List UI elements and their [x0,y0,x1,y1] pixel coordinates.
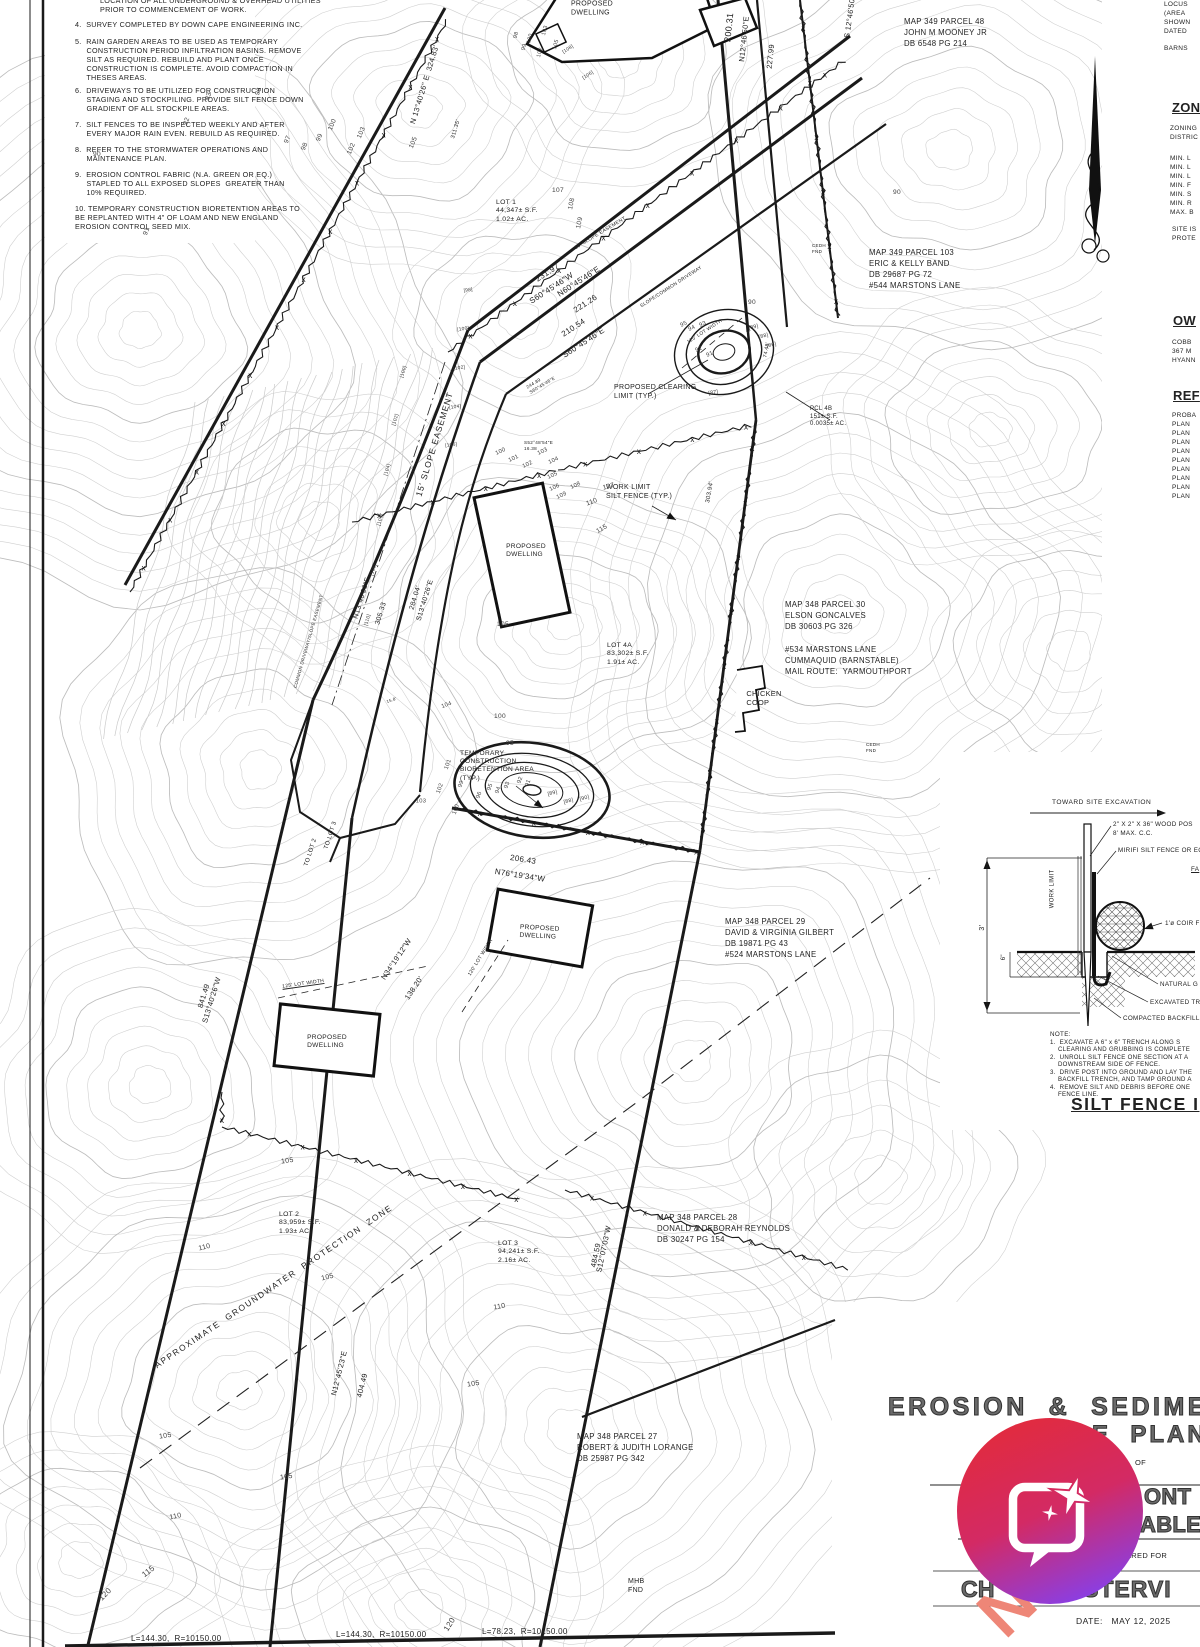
construction-note: 4. SURVEY COMPLETED BY DOWN CAPE ENGINEE… [75,20,302,29]
bearing-label: S 12°46'50" W 176.06' [842,0,863,39]
contour-label: 102 [436,782,446,794]
site-plan-sheet: xxxxxxxxxxxxxxxxxxxxxxxxxxxxxxxxxxxxxxxx… [0,0,1200,1647]
contour-label: 92 [694,345,703,355]
spot-elevation: [87] [708,389,719,397]
bearing-label: 305.33 [374,601,389,626]
feature-label: MHB FND [628,1578,644,1596]
dwelling-label: PROPOSED DWELLING [571,0,613,18]
lot-label: LOT 2 83,959± S.F. 1.93± AC. [279,1211,321,1236]
feature-label: CEDH FND [866,742,880,753]
sidebar-text: PROTE [1172,235,1196,243]
construction-note: 6. DRIVEWAYS TO BE UTILIZED FOR CONSTRUC… [75,86,304,113]
lot-label: LOT 3 94,241± S.F. 2.16± AC. [498,1240,540,1265]
parcel-label: MAP 348 PARCEL 29 DAVID & VIRGINIA GILBE… [725,917,834,961]
spot-elevation: [110] [364,614,373,627]
bearing-label: SLOPE/COMMON DRIVEWAY [640,266,704,310]
sidebar-text: DATED [1164,28,1187,36]
contour-label: 96 [475,791,484,800]
sidebar-text: MIN. F [1170,182,1191,190]
parcel-label: #534 MARSTONS LANE CUMMAQUID (BARNSTABLE… [785,645,912,678]
contour-label: 115 [595,523,609,536]
spot-elevation: [108] [562,44,575,56]
contour-label: 109 [575,216,586,229]
bearing-label: N12°45'23"E [329,1350,349,1397]
detail-label: TOWARD SITE EXCAVATION [1052,799,1151,807]
contour-label: 105 [497,621,509,629]
contour-label: 91 [142,226,152,236]
bearing-label: 404.49 [355,1372,370,1398]
feature-label: CHICKEN COOP [746,689,781,708]
sidebar-text: (AREA [1164,10,1185,18]
contour-label: 93 [503,781,512,790]
contour-label: 99 [521,43,529,51]
bearing-label: N34°19'12"W [379,937,414,982]
detail-label: EXCAVATED TR [1150,999,1200,1007]
feature-label: CEDH FND [812,243,826,254]
bearing-label: 311.35' [450,119,462,140]
detail-label: 1'ø COIR F [1165,920,1200,928]
contour-label: 105 [467,1380,481,1390]
sidebar-text: SHOWN [1164,19,1190,27]
curve-label: L=78.23, R=10150.00 [482,1627,568,1637]
sidebar-text: PLAN [1172,430,1190,438]
spot-elevation: [100] [400,365,409,378]
sidebar-text: BARNS [1164,45,1188,53]
contour-label: 105 [280,1473,294,1483]
lot-label: PCL 4B 151± S.F. 0.0035± AC. [810,406,846,429]
spot-elevation: [106] [582,70,595,82]
bearing-label: 244.89 S60°45'46"E [525,370,556,395]
contour-label: 98 [300,142,311,152]
contour-label: 104 [441,701,453,711]
contour-label: 105 [408,136,420,150]
curve-label: L=144.30, R=10150.00 [336,1630,426,1640]
contour-label: 90 [893,189,901,197]
sidebar-text: ZONING [1170,125,1197,133]
sidebar-text: PLAN [1172,475,1190,483]
sidebar-text: PLAN [1172,448,1190,456]
bearing-label: 120' LOT WIDTH [467,938,495,977]
bearing-label: TO LOT 3 [324,821,340,851]
detail-label: FA [1191,866,1199,874]
sidebar-text: MIN. S [1170,191,1192,199]
bearing-label: 200.31 [722,12,736,42]
detail-dimension: 3' [979,925,988,931]
detail-label: NATURAL G [1160,981,1198,989]
contour-label: 103 [416,798,427,805]
contour-label: 110 [169,1512,183,1523]
feature-label: PROPOSED CLEARING LIMIT (TYP.) [614,384,697,402]
contour-label: 94 [687,324,696,334]
spot-elevation: [89] [547,789,558,798]
construction-note: 9. EROSION CONTROL FABRIC (N.A. GREEN OR… [75,170,285,197]
construction-note: LOCATION OF ALL UNDERGROUND & OVERHEAD U… [100,0,321,14]
parcel-label: MAP 348 PARCEL 27 ROBERT & JUDITH LORANG… [577,1432,694,1465]
contour-label: 102 [346,142,358,156]
contour-label: 110 [493,1303,506,1314]
contour-label: 108 [570,481,583,492]
contour-label: 97 [283,135,294,145]
spot-elevation: [102] [453,365,466,373]
sidebar-text: PLAN [1172,421,1190,429]
sidebar-text: MAX. B [1170,209,1194,217]
contour-label: 90 [93,151,101,159]
spot-elevation: [90] [579,794,590,803]
sidebar-text: COBB [1172,339,1192,347]
sidebar-text: PLAN [1172,493,1190,501]
contour-label: 105 [321,1273,335,1285]
contour-label: 91 [524,779,533,788]
contour-label: 101 [508,454,521,465]
detail-label: COMPACTED BACKFILL [1123,1015,1200,1023]
contour-label: 105 [547,471,560,482]
contour-label: 102 [522,460,535,471]
bearing-label: N 13°40'26" E 324.83' [408,44,441,125]
sidebar-text: PLAN [1172,457,1190,465]
plan-labels: LOCATION OF ALL UNDERGROUND & OVERHEAD U… [0,0,1200,1647]
spot-elevation: [104] [449,404,462,412]
detail-label: 8' MAX. C.C. [1113,830,1153,838]
contour-label: 110 [585,497,599,509]
parcel-label: MAP 349 PARCEL 48 JOHN M MOONEY JR DB 65… [904,17,987,50]
bearing-label: 15.8' [386,696,398,705]
contour-label: 100 [526,33,535,45]
sidebar-text: MIN. L [1170,155,1191,163]
spot-elevation: [106] [445,442,458,450]
spot-elevation: [104] [384,463,393,476]
contour-label: 105 [552,39,561,51]
parcel-label: MAP 349 PARCEL 103 ERIC & KELLY BAND DB … [869,248,961,292]
sidebar-text: PLAN [1172,439,1190,447]
detail-title: SILT FENCE I [1071,1094,1200,1116]
lot-label: LOT 4A 83,302± S.F. 1.91± AC. [607,642,649,667]
sidebar-text: MIN. L [1170,164,1191,172]
zoning-heading: ZON [1172,100,1200,116]
dwelling-label: PROPOSED DWELLING [506,543,546,559]
detail-note: 1. EXCAVATE A 6" x 6" TRENCH ALONG S CLE… [1050,1039,1192,1099]
spot-elevation: [86] [766,341,777,350]
contour-label: 103 [356,126,368,140]
bearing-label: N76°19'34"W [494,867,546,885]
spot-elevation: [89] [748,323,759,332]
bearing-label: 303.94' [705,481,716,504]
parcel-label: MAP 348 PARCEL 28 DONALD & DEBORAH REYNO… [657,1213,790,1246]
dwelling-label: PROPOSED DWELLING [307,1034,347,1050]
sidebar-text: SITE IS [1172,226,1197,234]
sidebar-text: HYANN [1172,357,1196,365]
contour-label: 108 [567,197,578,210]
detail-dimension: 6" [1001,954,1009,960]
curve-label: L=144.30, R=10150.00 [131,1634,221,1644]
bearing-label: 221.26 [572,293,599,316]
spot-elevation: [88] [758,332,769,341]
contour-label: 109 [556,491,569,502]
bearing-label: 138.20' [403,974,426,1001]
owner-heading: OW [1173,313,1196,329]
contour-label: 110 [198,1243,212,1254]
dwelling-label: PROPOSED DWELLING [519,924,560,943]
contour-label: 115 [140,1564,157,1580]
lot-label: LOT 1 44,347± S.F. 1.02± AC. [496,199,538,224]
contour-label: 100 [327,118,339,132]
construction-note: 10. TEMPORARY CONSTRUCTION BIORETENTION … [75,204,300,231]
spot-elevation: [108] [370,563,379,576]
bearing-label: 227.99 [765,44,777,70]
sidebar-text: MIN. R [1170,200,1192,208]
references-heading: REF [1173,388,1200,404]
contour-label: 105 [281,1157,295,1167]
sidebar-text: 367 M [1172,348,1192,356]
sidebar-text: LOCUS [1164,1,1188,9]
spot-elevation: [98] [463,288,473,295]
sidebar-text: MIN. L [1170,173,1191,181]
spot-elevation: [102] [392,413,401,426]
parcel-label: MAP 348 PARCEL 30 ELSON GONCALVES DB 306… [785,600,866,633]
contour-label: 100 [494,713,506,721]
detail-label: MIRIFI SILT FENCE OR EQ [1118,847,1200,855]
plan-title-frag: ONT [1144,1483,1191,1511]
contour-label: 105 [159,1432,173,1442]
spot-elevation: [106] [377,513,386,526]
bearing-label: TO LOT 2 [304,838,320,868]
contour-label: 99 [457,780,466,789]
construction-note: 5. RAIN GARDEN AREAS TO BE USED AS TEMPO… [75,37,302,82]
contour-label: 100 [495,447,508,458]
sidebar-text: PLAN [1172,466,1190,474]
bearing-label: 206.43 [509,853,537,867]
contour-label: 101 [444,758,454,770]
contour-label: 100 [452,803,462,815]
spot-elevation: [100] [457,326,470,334]
spot-elevation: [88] [563,797,574,806]
sidebar-text: DISTRIC [1170,134,1198,142]
contour-label: 95 [506,740,514,748]
bearing-label: 125' LOT WIDTH [282,978,325,990]
zone-label: APPROXIMATE GROUNDWATER PROTECTION ZONE [153,1202,395,1370]
contour-label: 103 [541,25,550,37]
contour-label: 120 [97,1586,114,1603]
detail-note: NOTE: [1050,1031,1071,1039]
sidebar-text: PLAN [1172,484,1190,492]
bearing-label: COMMON DRIVEWAY/SLOPE EASEMENT [292,594,324,689]
sidebar-text: PROBA [1172,412,1196,420]
contour-label: 98 [513,31,521,39]
contour-label: 90 [748,299,756,307]
contour-label: 102 [536,47,545,59]
feature-label: WORK LIMIT SILT FENCE (TYP.) [606,484,672,502]
contour-label: 107 [552,187,564,195]
contour-label: 91 [705,350,714,360]
detail-label: WORK LIMIT [1050,870,1058,909]
watermark-logo [950,1411,1150,1647]
detail-label: 2" X 2" X 36" WOOD POS [1113,821,1193,829]
construction-note: 8. REFER TO THE STORMWATER OPERATIONS AN… [75,145,268,163]
bearing-label: N12°46'50"E [737,16,751,63]
contour-label: 120 [442,1616,458,1633]
contour-label: 104 [548,456,561,467]
contour-label: 99 [315,133,326,143]
construction-note: 7. SILT FENCES TO BE INSPECTED WEEKLY AN… [75,120,285,138]
